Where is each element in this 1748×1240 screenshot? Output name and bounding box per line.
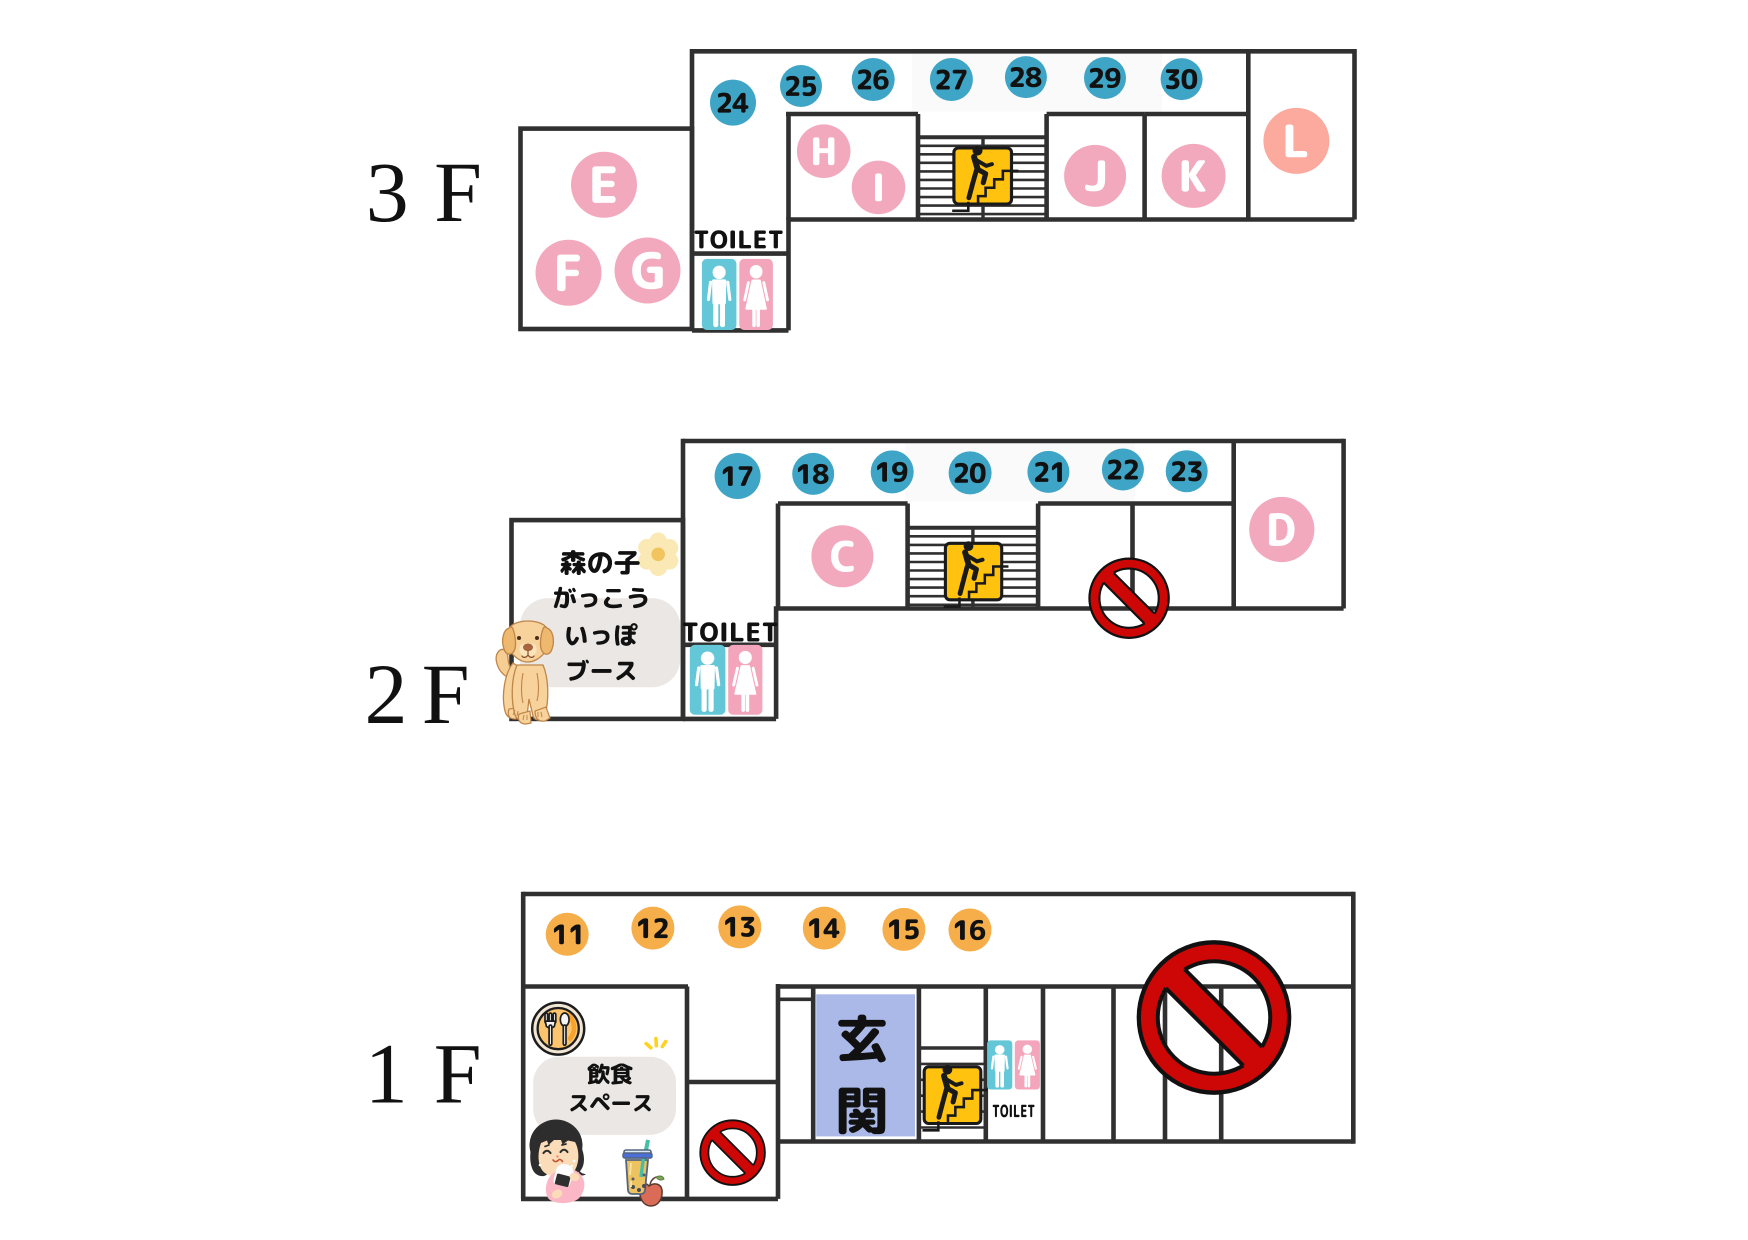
svg-text:1: 1 xyxy=(365,1026,408,1122)
svg-text:F: F xyxy=(434,144,482,240)
svg-text:3: 3 xyxy=(366,144,409,240)
svg-text:F: F xyxy=(422,646,470,742)
svg-text:2: 2 xyxy=(365,646,408,742)
svg-text:F: F xyxy=(434,1026,482,1122)
